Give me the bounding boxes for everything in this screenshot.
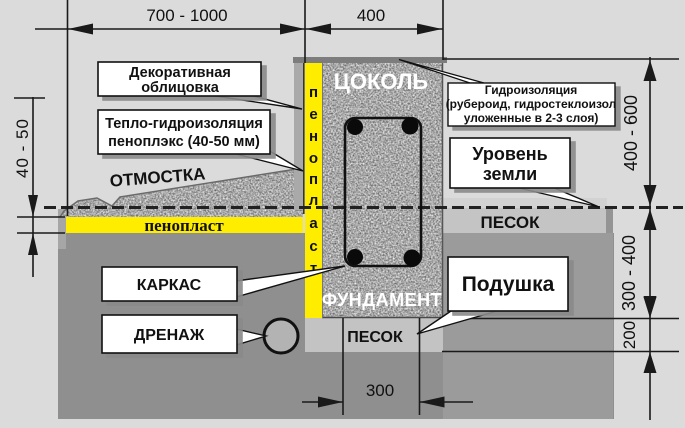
svg-text:300: 300	[366, 381, 394, 400]
svg-text:Подушка: Подушка	[462, 273, 555, 296]
svg-text:а: а	[309, 215, 318, 232]
svg-text:ФУНДАМЕНТ: ФУНДАМЕНТ	[322, 290, 442, 310]
svg-text:н: н	[309, 128, 318, 145]
svg-text:с: с	[309, 238, 317, 255]
svg-text:п: п	[309, 171, 318, 188]
svg-text:Декоративная: Декоративная	[129, 65, 231, 81]
svg-text:ПЕСОК: ПЕСОК	[480, 213, 540, 232]
svg-text:700 - 1000: 700 - 1000	[146, 6, 227, 25]
svg-text:ПЕСОК: ПЕСОК	[347, 329, 403, 346]
svg-text:е: е	[309, 106, 317, 123]
svg-text:КАРКАС: КАРКАС	[137, 277, 202, 294]
svg-text:уложенные в 2-3 слоя): уложенные в 2-3 слоя)	[464, 111, 599, 125]
svg-text:пеноплэкс (40-50 мм): пеноплэкс (40-50 мм)	[108, 134, 260, 150]
svg-text:200: 200	[620, 321, 639, 349]
svg-text:пенопласт: пенопласт	[144, 216, 224, 235]
svg-text:Тепло-гидроизоляция: Тепло-гидроизоляция	[105, 116, 263, 132]
svg-text:40 - 50: 40 - 50	[13, 118, 32, 178]
svg-text:земли: земли	[483, 164, 537, 184]
svg-text:Гидроизоляция: Гидроизоляция	[485, 83, 578, 97]
svg-text:ДРЕНАЖ: ДРЕНАЖ	[134, 327, 205, 344]
svg-text:облицовка: облицовка	[141, 80, 220, 96]
svg-text:Уровень: Уровень	[472, 144, 547, 164]
svg-text:ЦОКОЛЬ: ЦОКОЛЬ	[334, 69, 429, 94]
svg-text:400 - 600: 400 - 600	[621, 95, 641, 171]
svg-text:(рубероид, гидростеклоизол: (рубероид, гидростеклоизол	[446, 97, 617, 111]
svg-text:п: п	[309, 84, 318, 101]
svg-text:300 - 400: 300 - 400	[619, 235, 639, 311]
svg-text:о: о	[309, 150, 318, 167]
svg-text:400: 400	[357, 6, 385, 25]
